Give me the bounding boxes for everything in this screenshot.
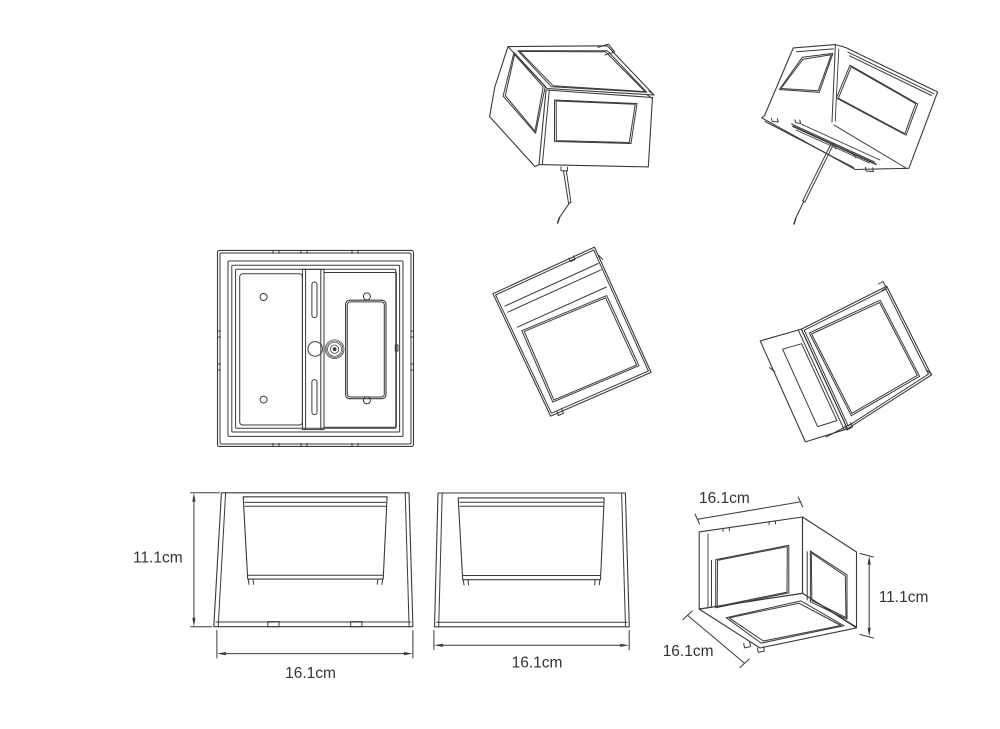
svg-text:11.1cm: 11.1cm: [133, 550, 183, 567]
svg-text:16.1cm: 16.1cm: [512, 655, 563, 672]
svg-text:16.1cm: 16.1cm: [699, 490, 750, 507]
svg-text:16.1cm: 16.1cm: [663, 643, 714, 660]
svg-text:16.1cm: 16.1cm: [285, 665, 336, 682]
svg-text:11.1cm: 11.1cm: [879, 589, 929, 606]
